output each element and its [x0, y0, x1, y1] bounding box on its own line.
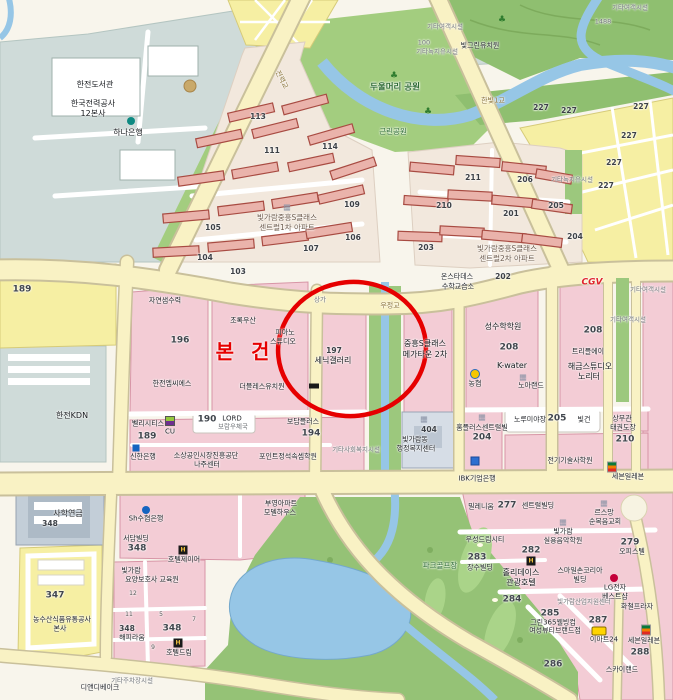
- kdn-region: [0, 346, 106, 462]
- map-container: 한전도서관한국전력공사12본사하나은행한전KDN두울머리 공원근린공원전력교한빛…: [0, 0, 673, 700]
- roundabout: [621, 495, 647, 521]
- map-base: [0, 0, 673, 700]
